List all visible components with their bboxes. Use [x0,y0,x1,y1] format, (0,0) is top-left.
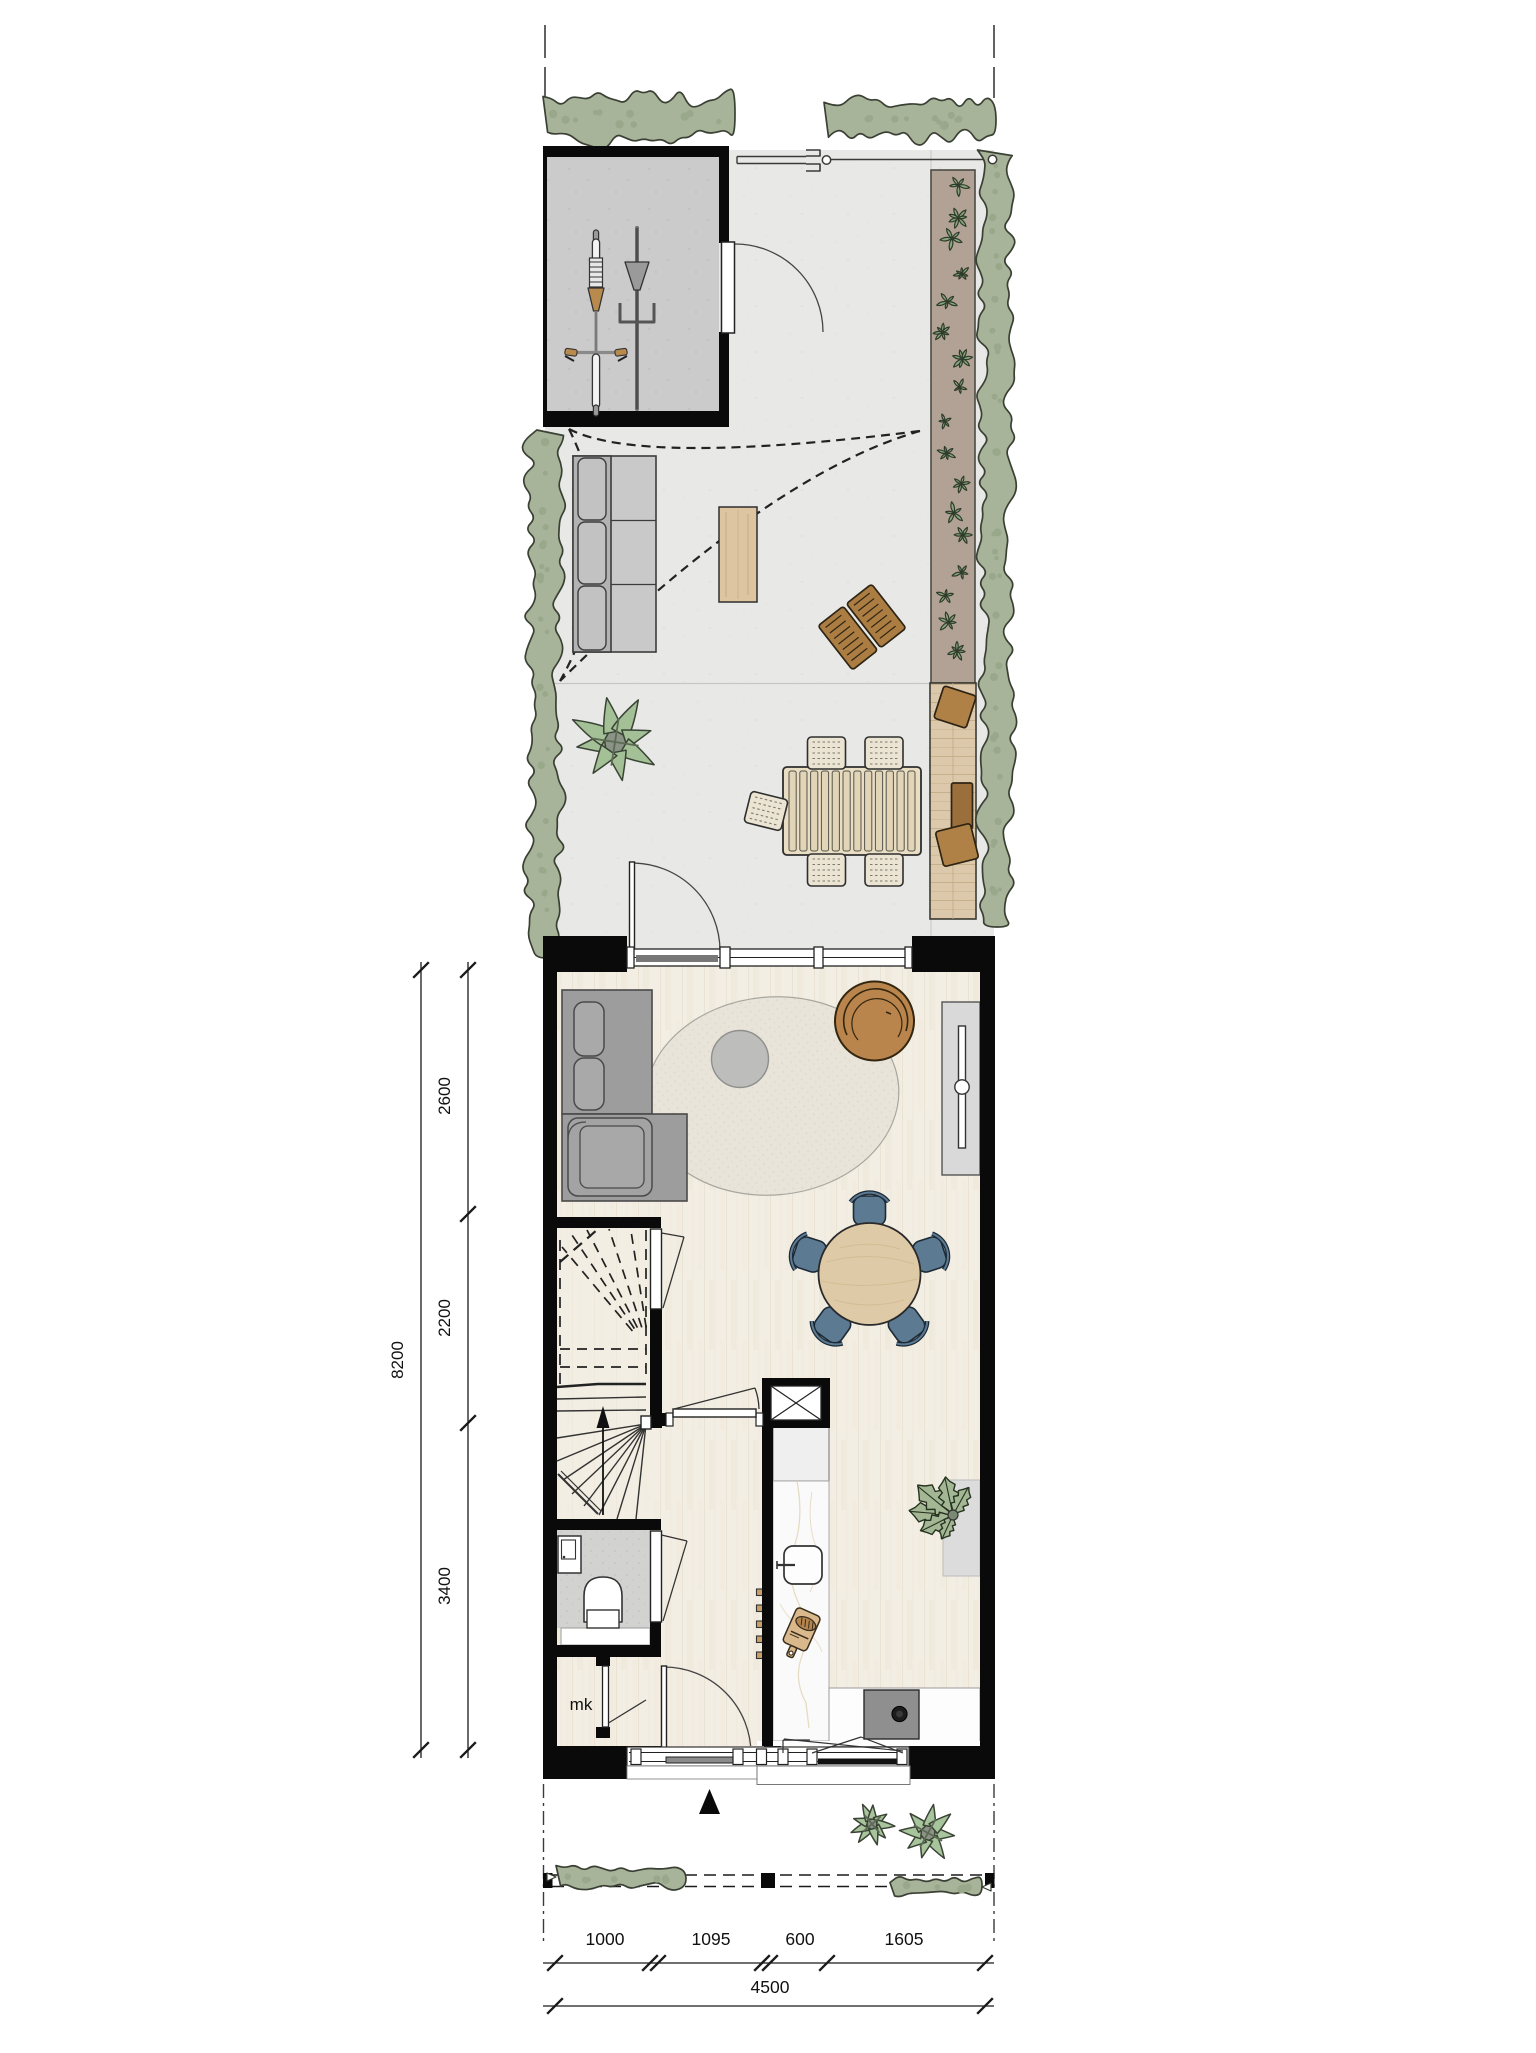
svg-text:1605: 1605 [885,1929,924,1949]
svg-text:1000: 1000 [586,1929,625,1949]
svg-text:4500: 4500 [751,1977,790,1997]
svg-text:2600: 2600 [435,1077,454,1115]
svg-text:mk: mk [570,1695,593,1714]
svg-text:1095: 1095 [692,1929,731,1949]
svg-text:2200: 2200 [435,1299,454,1337]
svg-text:3400: 3400 [435,1567,454,1605]
svg-text:600: 600 [785,1929,814,1949]
svg-text:8200: 8200 [388,1341,407,1379]
